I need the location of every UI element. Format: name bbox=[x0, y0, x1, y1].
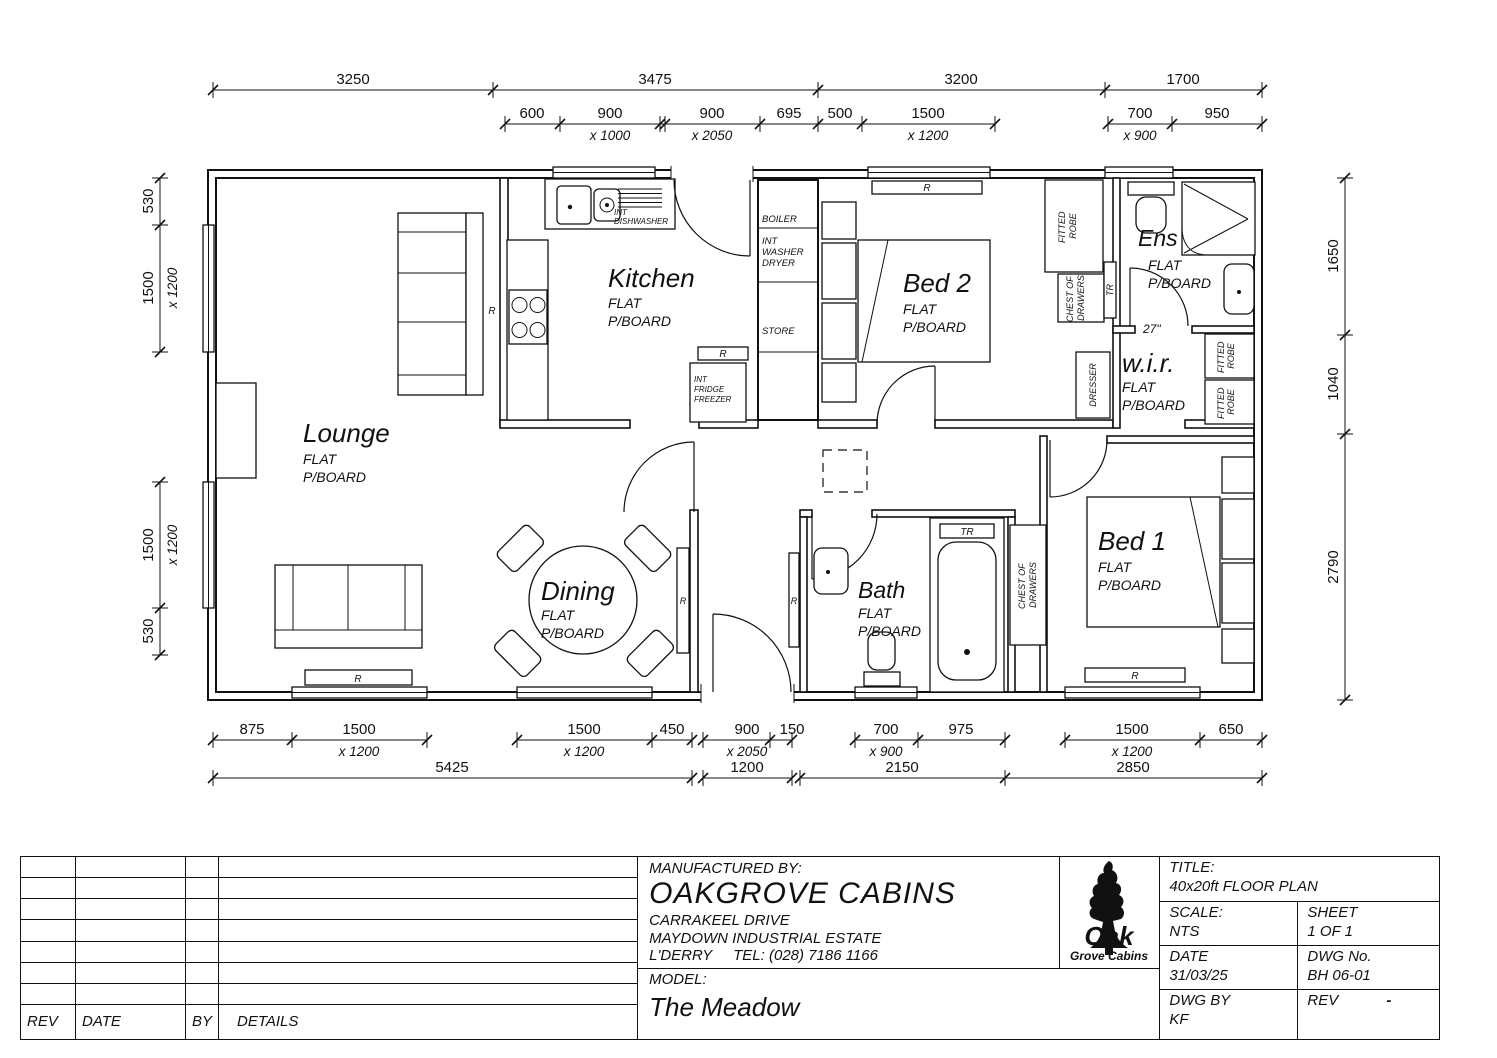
room-label: Ens bbox=[1138, 225, 1178, 251]
utility-column: BOILER INT WASHER DRYER STORE bbox=[758, 180, 818, 420]
svg-text:TR: TR bbox=[960, 527, 973, 538]
room-label: Bath bbox=[858, 577, 905, 603]
sofa-large bbox=[398, 213, 483, 395]
details-header: DETAILS bbox=[219, 1005, 637, 1039]
svg-text:x 1200: x 1200 bbox=[563, 744, 605, 759]
window-kitchen-top bbox=[553, 167, 655, 178]
svg-text:1700: 1700 bbox=[1166, 71, 1199, 88]
svg-text:3200: 3200 bbox=[944, 71, 977, 88]
fitted-robe-wir-2: FITTED ROBE bbox=[1205, 380, 1254, 424]
entrance bbox=[713, 614, 791, 692]
room-label: Kitchen bbox=[608, 263, 695, 293]
store-label: STORE bbox=[762, 326, 795, 337]
logo-line2: Grove Cabins bbox=[1070, 949, 1148, 963]
svg-text:695: 695 bbox=[776, 105, 801, 122]
company-logo: Oak Grove Cabins bbox=[1059, 857, 1159, 968]
svg-text:P/BOARD: P/BOARD bbox=[1098, 577, 1161, 593]
door-kitchen-back bbox=[674, 180, 750, 256]
date-label: DATE bbox=[1169, 948, 1297, 967]
dresser: DRESSER bbox=[1076, 352, 1110, 418]
svg-text:1500: 1500 bbox=[342, 721, 375, 738]
svg-text:2790: 2790 bbox=[1325, 550, 1342, 583]
chest-of-drawers-bed1: CHEST OF DRAWERS bbox=[1010, 525, 1046, 645]
shower bbox=[1182, 182, 1255, 255]
radiator-hall: R bbox=[698, 347, 748, 360]
drawing-title: 40x20ft FLOOR PLAN bbox=[1169, 878, 1439, 897]
room-dining: R Dining FLAT P/BOARD bbox=[493, 523, 689, 678]
address-line3: L'DERRY TEL: (028) 7186 1166 bbox=[649, 947, 1059, 964]
dims-bottom-row2: 5425 1200 2150 2850 bbox=[208, 759, 1267, 786]
svg-text:700: 700 bbox=[1127, 105, 1152, 122]
rev-cell bbox=[21, 857, 76, 878]
window-dining-bottom bbox=[517, 687, 652, 698]
radiator-bed1: R bbox=[1085, 668, 1185, 682]
svg-text:1200: 1200 bbox=[730, 759, 763, 776]
svg-text:FLAT: FLAT bbox=[303, 451, 338, 467]
logo-line1: Oak bbox=[1085, 921, 1136, 951]
svg-text:FLAT: FLAT bbox=[858, 605, 893, 621]
svg-text:x 1200: x 1200 bbox=[907, 128, 949, 143]
svg-text:x 900: x 900 bbox=[1122, 128, 1157, 143]
svg-text:INT: INT bbox=[694, 375, 708, 384]
boiler-label: BOILER bbox=[762, 214, 797, 225]
dims-top-row1: 3250 3475 3200 1700 bbox=[208, 71, 1267, 98]
svg-text:R: R bbox=[923, 183, 930, 194]
svg-text:1500: 1500 bbox=[567, 721, 600, 738]
radiator-lounge: R bbox=[305, 670, 412, 685]
manufacturer-block: MANUFACTURED BY: OAKGROVE CABINS CARRAKE… bbox=[637, 857, 1159, 1039]
dwgby-value: KF bbox=[1169, 1011, 1297, 1030]
dims-top-row2: 600 900 x 1000 900 x 2050 695 500 1500 x… bbox=[500, 105, 1267, 143]
svg-text:900: 900 bbox=[699, 105, 724, 122]
room-lounge: R Lounge FLAT P/BOARD R bbox=[216, 213, 496, 685]
svg-text:900: 900 bbox=[597, 105, 622, 122]
radiator-dining: R bbox=[677, 548, 689, 653]
sheet-value: 1 OF 1 bbox=[1307, 923, 1439, 942]
dims-left: 530 1500 x 1200 1500 x 1200 530 bbox=[140, 173, 180, 660]
dwgby-cell: DWG BY KF bbox=[1160, 990, 1298, 1039]
telephone: TEL: (028) 7186 1166 bbox=[733, 947, 878, 964]
lounge-unit bbox=[216, 383, 256, 478]
svg-text:P/BOARD: P/BOARD bbox=[858, 623, 921, 639]
dwgby-label: DWG BY bbox=[1169, 992, 1297, 1011]
sheet-cell: SHEET 1 OF 1 bbox=[1298, 902, 1439, 945]
revision-table: REV DATE BY DETAILS bbox=[21, 857, 637, 1039]
svg-text:500: 500 bbox=[827, 105, 852, 122]
door-bed1 bbox=[1050, 440, 1107, 497]
radiator-bath: R bbox=[789, 553, 799, 647]
room-label: Bed 1 bbox=[1098, 526, 1166, 556]
door-width-label: 27" bbox=[1142, 322, 1161, 336]
svg-text:WASHER: WASHER bbox=[762, 247, 804, 258]
svg-text:INT: INT bbox=[614, 208, 628, 217]
svg-text:FITTED ROBE: FITTED ROBE bbox=[1057, 209, 1078, 243]
svg-text:650: 650 bbox=[1218, 721, 1243, 738]
manufactured-by-label: MANUFACTURED BY: bbox=[649, 860, 1059, 877]
room-bed2: R FITTED ROBE CHEST OF DRAWERS bbox=[822, 180, 1110, 424]
svg-text:5425: 5425 bbox=[435, 759, 468, 776]
toilet-bath bbox=[864, 632, 900, 686]
svg-text:x 2050: x 2050 bbox=[691, 128, 733, 143]
svg-text:150: 150 bbox=[779, 721, 804, 738]
room-ens: TR Ens FLAT P/BOARD 27" bbox=[1104, 182, 1255, 336]
date-header: DATE bbox=[76, 1005, 186, 1039]
basin-ens bbox=[1224, 264, 1254, 314]
by-header: BY bbox=[186, 1005, 219, 1039]
svg-text:700: 700 bbox=[873, 721, 898, 738]
dwgno-label: DWG No. bbox=[1307, 948, 1439, 967]
date-cell: DATE 31/03/25 bbox=[1160, 946, 1298, 989]
svg-text:3475: 3475 bbox=[638, 71, 671, 88]
window-bed2-top bbox=[868, 167, 990, 178]
title-block: REV DATE BY DETAILS MANUFACTURED BY: OAK… bbox=[20, 856, 1440, 1040]
svg-text:1500: 1500 bbox=[140, 271, 157, 304]
svg-text:P/BOARD: P/BOARD bbox=[1148, 275, 1211, 291]
svg-text:P/BOARD: P/BOARD bbox=[541, 625, 604, 641]
svg-text:P/BOARD: P/BOARD bbox=[608, 313, 671, 329]
svg-text:1500: 1500 bbox=[140, 528, 157, 561]
svg-text:3250: 3250 bbox=[336, 71, 369, 88]
window-bed1-bottom bbox=[1065, 687, 1200, 698]
room-label: Dining bbox=[541, 576, 615, 606]
sheet-label: SHEET bbox=[1307, 904, 1439, 923]
dwgno-value: BH 06-01 bbox=[1307, 967, 1439, 986]
svg-text:P/BOARD: P/BOARD bbox=[303, 469, 366, 485]
svg-text:DRESSER: DRESSER bbox=[1088, 363, 1098, 407]
svg-text:R: R bbox=[791, 596, 798, 606]
scale-label: SCALE: bbox=[1169, 904, 1297, 923]
fitted-robe-wir-1: FITTED ROBE bbox=[1205, 334, 1254, 378]
basin-bath bbox=[814, 548, 848, 594]
svg-text:R: R bbox=[354, 674, 361, 685]
svg-text:FLAT: FLAT bbox=[1122, 379, 1157, 395]
title-label: TITLE: bbox=[1169, 859, 1439, 878]
svg-text:950: 950 bbox=[1204, 105, 1229, 122]
svg-text:x 1200: x 1200 bbox=[165, 267, 180, 309]
svg-text:FRIDGE: FRIDGE bbox=[694, 385, 725, 394]
svg-text:2150: 2150 bbox=[885, 759, 918, 776]
svg-text:x 1200: x 1200 bbox=[165, 524, 180, 566]
dims-right: 1650 1040 2790 bbox=[1325, 173, 1353, 705]
svg-text:CHEST OF DRAWERS: CHEST OF DRAWERS bbox=[1017, 561, 1038, 609]
room-label: Lounge bbox=[303, 418, 390, 448]
svg-text:P/BOARD: P/BOARD bbox=[903, 319, 966, 335]
svg-text:FLAT: FLAT bbox=[1098, 559, 1133, 575]
meta-block: TITLE: 40x20ft FLOOR PLAN SCALE: NTS SHE… bbox=[1159, 857, 1439, 1039]
rev-cell-meta: REV - bbox=[1298, 990, 1439, 1039]
svg-text:450: 450 bbox=[659, 721, 684, 738]
room-wir: FITTED ROBE FITTED ROBE w.i.r. FLAT P/BO… bbox=[1122, 334, 1254, 424]
window-ens-top bbox=[1105, 167, 1173, 178]
radiator-kitchen-wall: R bbox=[488, 306, 495, 317]
svg-text:x 2050: x 2050 bbox=[726, 744, 768, 759]
svg-text:975: 975 bbox=[948, 721, 973, 738]
svg-text:DISHWASHER: DISHWASHER bbox=[614, 217, 668, 226]
svg-text:TR: TR bbox=[1105, 284, 1115, 296]
svg-text:R: R bbox=[680, 596, 687, 606]
svg-text:FREEZER: FREEZER bbox=[694, 395, 732, 404]
svg-text:900: 900 bbox=[734, 721, 759, 738]
sofa-small bbox=[275, 565, 422, 648]
svg-text:x 900: x 900 bbox=[868, 744, 903, 759]
scale-value: NTS bbox=[1169, 923, 1297, 942]
svg-text:CHEST OF DRAWERS: CHEST OF DRAWERS bbox=[1065, 274, 1086, 322]
floor-plan: R Lounge FLAT P/BOARD R INT DISHWASHER bbox=[0, 0, 1497, 830]
towel-rail-ens: TR bbox=[1104, 262, 1116, 318]
hallway bbox=[624, 440, 1107, 512]
address-line2: MAYDOWN INDUSTRIAL ESTATE bbox=[649, 930, 1059, 947]
room-bath: TR R Bath FLAT P/BOARD bbox=[789, 514, 1004, 692]
svg-text:875: 875 bbox=[239, 721, 264, 738]
room-kitchen: INT DISHWASHER INT FRIDGE FREEZER R Kitc… bbox=[507, 179, 750, 422]
model-label: MODEL: bbox=[649, 971, 1159, 988]
address-line1: CARRAKEEL DRIVE bbox=[649, 912, 1059, 929]
svg-text:FITTED ROBE: FITTED ROBE bbox=[1216, 339, 1236, 373]
svg-text:FLAT: FLAT bbox=[541, 607, 576, 623]
loft-hatch bbox=[823, 450, 867, 492]
rev-value: - bbox=[1386, 992, 1391, 1011]
svg-text:FLAT: FLAT bbox=[903, 301, 938, 317]
svg-text:x 1000: x 1000 bbox=[589, 128, 631, 143]
svg-text:DRYER: DRYER bbox=[762, 258, 795, 269]
svg-text:x 1200: x 1200 bbox=[1111, 744, 1153, 759]
window-lounge-left-lower bbox=[203, 482, 214, 608]
rev-label: REV bbox=[1307, 992, 1338, 1009]
radiator-bed2: R bbox=[872, 181, 982, 194]
rev-header: REV bbox=[21, 1005, 76, 1039]
bathtub: TR bbox=[930, 518, 1004, 692]
door-hall bbox=[624, 442, 694, 512]
room-label: Bed 2 bbox=[903, 268, 971, 298]
svg-text:1500: 1500 bbox=[1115, 721, 1148, 738]
window-lounge-left-upper bbox=[203, 225, 214, 352]
window-bath-bottom bbox=[855, 687, 917, 698]
svg-text:R: R bbox=[1131, 671, 1138, 682]
dwgno-cell: DWG No. BH 06-01 bbox=[1298, 946, 1439, 989]
svg-text:1040: 1040 bbox=[1325, 367, 1342, 400]
fitted-robe-bed2: FITTED ROBE bbox=[1045, 180, 1103, 272]
hob bbox=[509, 290, 547, 344]
svg-text:INT: INT bbox=[762, 236, 779, 247]
svg-text:530: 530 bbox=[140, 618, 157, 643]
svg-text:x 1200: x 1200 bbox=[338, 744, 380, 759]
model-name: The Meadow bbox=[649, 992, 1159, 1023]
chest-of-drawers-bed2: CHEST OF DRAWERS bbox=[1058, 274, 1104, 322]
svg-text:FLAT: FLAT bbox=[608, 295, 643, 311]
title-cell: TITLE: 40x20ft FLOOR PLAN bbox=[1160, 857, 1439, 901]
svg-text:530: 530 bbox=[140, 188, 157, 213]
scale-cell: SCALE: NTS bbox=[1160, 902, 1298, 945]
room-label: w.i.r. bbox=[1122, 348, 1174, 378]
svg-text:R: R bbox=[719, 349, 726, 360]
dims-bottom-row1: 875 1500 x 1200 1500 x 1200 450 900 x 20… bbox=[208, 721, 1267, 759]
svg-text:P/BOARD: P/BOARD bbox=[1122, 397, 1185, 413]
svg-text:2850: 2850 bbox=[1116, 759, 1149, 776]
svg-text:1650: 1650 bbox=[1325, 239, 1342, 272]
fridge-freezer: INT FRIDGE FREEZER bbox=[690, 363, 746, 422]
svg-text:FLAT: FLAT bbox=[1148, 257, 1183, 273]
company-name: OAKGROVE CABINS bbox=[649, 877, 1059, 912]
svg-text:600: 600 bbox=[519, 105, 544, 122]
svg-text:1500: 1500 bbox=[911, 105, 944, 122]
window-lounge-bottom bbox=[292, 687, 427, 698]
door-bed2 bbox=[877, 366, 935, 424]
drawing-sheet: R Lounge FLAT P/BOARD R INT DISHWASHER bbox=[0, 0, 1497, 1058]
kitchen-sink bbox=[557, 186, 620, 224]
svg-text:FITTED ROBE: FITTED ROBE bbox=[1216, 385, 1236, 419]
date-value: 31/03/25 bbox=[1169, 967, 1297, 986]
